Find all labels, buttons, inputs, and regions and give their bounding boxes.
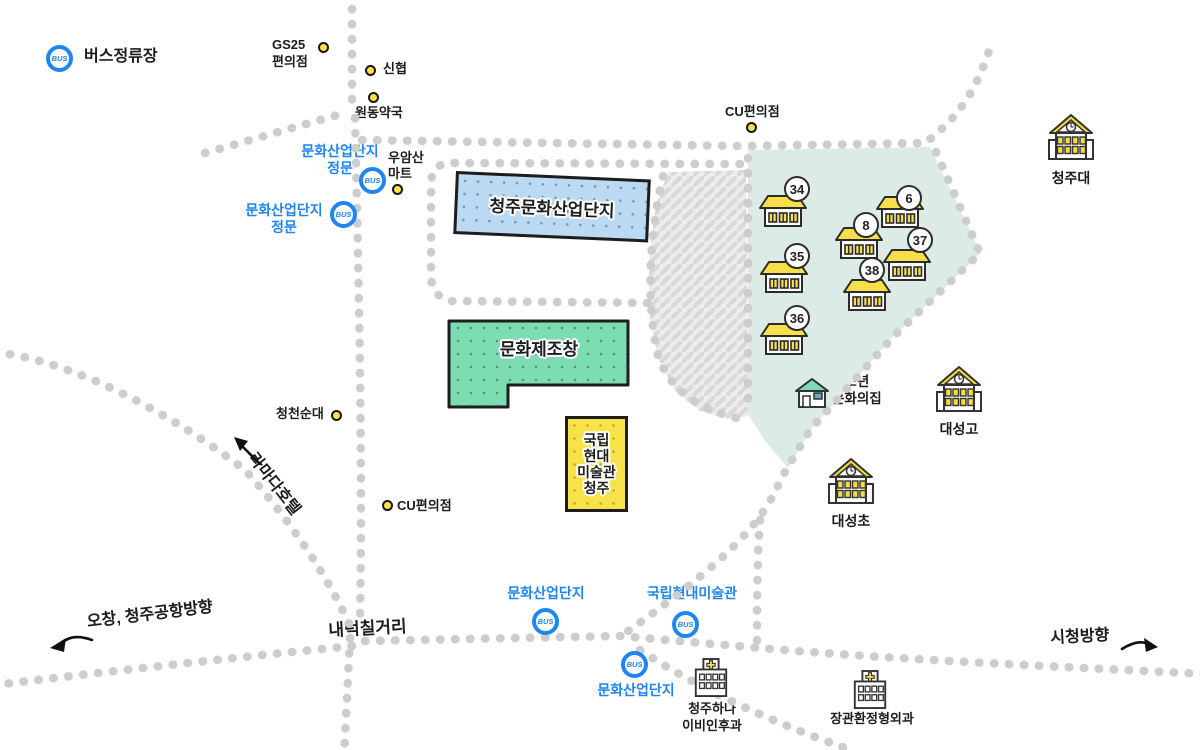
factory-building-dots: [449, 321, 628, 407]
map-canvas: BUS 버스정류장 GS25 편의점 신협 원동약국 우암산 마트 CU편의점 …: [0, 0, 1200, 750]
warehouse-38-icon: [843, 277, 891, 313]
hana-ent-icon: [692, 656, 730, 700]
road-vertical-south: [344, 638, 350, 750]
gate1-bus-icon: BUS: [359, 167, 386, 194]
warehouse-37-badge: 37: [907, 227, 933, 253]
warehouse-34-badge: 34: [784, 176, 810, 202]
cityhall-arrow: [1122, 642, 1148, 649]
warehouse-6-badge: 6: [896, 185, 922, 211]
ramada-arrow: [243, 447, 260, 464]
ochang-arrow-head: [50, 638, 66, 652]
south1-bus-icon: BUS: [532, 608, 559, 635]
industrial-complex-label: 청주문화산업단지: [489, 192, 615, 222]
factory-label: 문화제조창: [464, 340, 614, 360]
daeseong-high-icon: [935, 365, 983, 417]
cu-west-dot: [382, 500, 393, 511]
warehouse-8-badge: 8: [853, 212, 879, 238]
bus-legend-icon: BUS: [46, 45, 73, 72]
museum-label: 국립 현대 미술관 청주: [577, 432, 616, 496]
warehouse-35-badge: 35: [784, 243, 810, 269]
ochang-arrow: [62, 637, 92, 643]
parking-zone: [649, 170, 748, 419]
industrial-complex-building: 청주문화산업단지: [453, 171, 651, 242]
sinhyup-dot: [365, 65, 376, 76]
gs25-dot: [318, 42, 329, 53]
cityhall-arrow-head: [1144, 638, 1158, 652]
base-map-layer: [0, 0, 1200, 750]
road-branch-south: [757, 520, 760, 646]
jang-ortho-icon: [851, 668, 889, 712]
wondong-pharmacy-dot: [368, 92, 379, 103]
cheongju-univ-icon: [1047, 113, 1095, 165]
warehouse-36-badge: 36: [784, 305, 810, 331]
road-top-horizontal: [362, 48, 990, 146]
museum-bus-icon: BUS: [672, 611, 699, 638]
road-ochang-west: [0, 646, 352, 685]
road-bottom-horizontal: [365, 636, 1200, 674]
south2-bus-icon: BUS: [621, 651, 648, 678]
wooamsan-mart-dot: [392, 184, 403, 195]
cheongcheon-sundae-dot: [331, 410, 342, 421]
warehouse-38-badge: 38: [859, 257, 885, 283]
cu-north-dot: [746, 122, 757, 133]
daeseong-elem-icon: [827, 457, 875, 509]
youth-center-icon: [795, 377, 829, 409]
road-southeast-diagonal: [640, 650, 845, 748]
road-vertical-main: [355, 118, 361, 622]
museum-building: 국립 현대 미술관 청주: [565, 416, 628, 512]
road-ramada-diagonal: [0, 352, 350, 626]
gate2-bus-icon: BUS: [330, 201, 357, 228]
road-topleft-diagonal: [205, 112, 348, 153]
